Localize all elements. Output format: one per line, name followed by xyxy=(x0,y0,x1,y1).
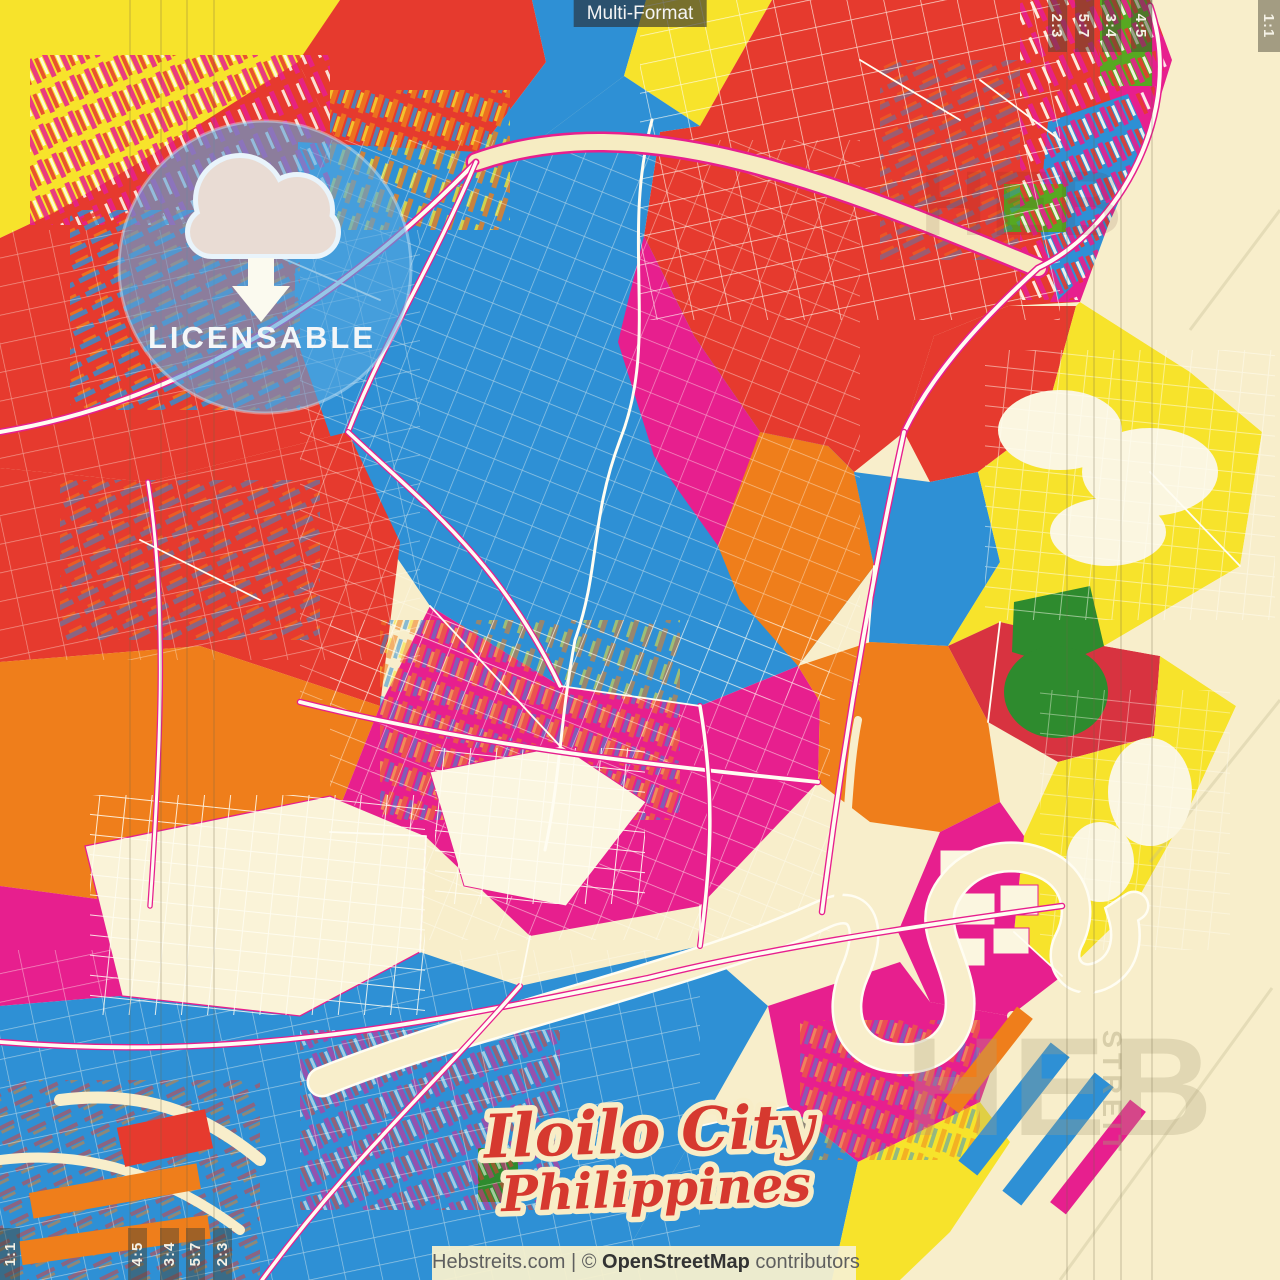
country-name-label: Philippines xyxy=(498,1154,812,1223)
format-marker: 1:1 xyxy=(2,1242,19,1267)
format-marker: 2:3 xyxy=(1048,14,1065,39)
format-label-chip: Multi-Format xyxy=(574,0,707,27)
format-marker: 4:5 xyxy=(129,1242,146,1267)
attribution-bar: Hebstreits.com | © OpenStreetMap contrib… xyxy=(432,1246,856,1280)
watermark-streit-vertical: STREIT xyxy=(1097,1030,1127,1156)
attribution-site-text: Hebstreits.com xyxy=(432,1251,565,1273)
format-marker: 4:5 xyxy=(1132,14,1149,39)
map-poster: HEB STREIT HEB xyxy=(0,0,1280,1280)
format-marker: 1:1 xyxy=(1260,14,1277,39)
map-canvas: HEB STREIT HEB xyxy=(0,0,1280,1280)
map-title: Iloilo City Philippines xyxy=(481,1091,822,1224)
attribution-separator: | xyxy=(571,1251,576,1273)
format-marker: 2:3 xyxy=(214,1242,231,1267)
attribution-contributors-text: contributors xyxy=(755,1251,860,1273)
watermark-heb-faint: HEB xyxy=(920,153,1126,255)
licensable-badge: LICENSABLE xyxy=(119,121,411,413)
watermark-heb-large: HEB xyxy=(905,1008,1219,1165)
format-marker: 3:4 xyxy=(1102,14,1119,39)
format-marker: 5:7 xyxy=(1075,14,1092,39)
format-marker: 5:7 xyxy=(187,1242,204,1267)
copyright-symbol: © xyxy=(582,1251,597,1273)
format-marker: 3:4 xyxy=(161,1242,178,1267)
licensable-label: LICENSABLE xyxy=(148,320,376,355)
osm-attribution-text: OpenStreetMap xyxy=(602,1251,750,1273)
